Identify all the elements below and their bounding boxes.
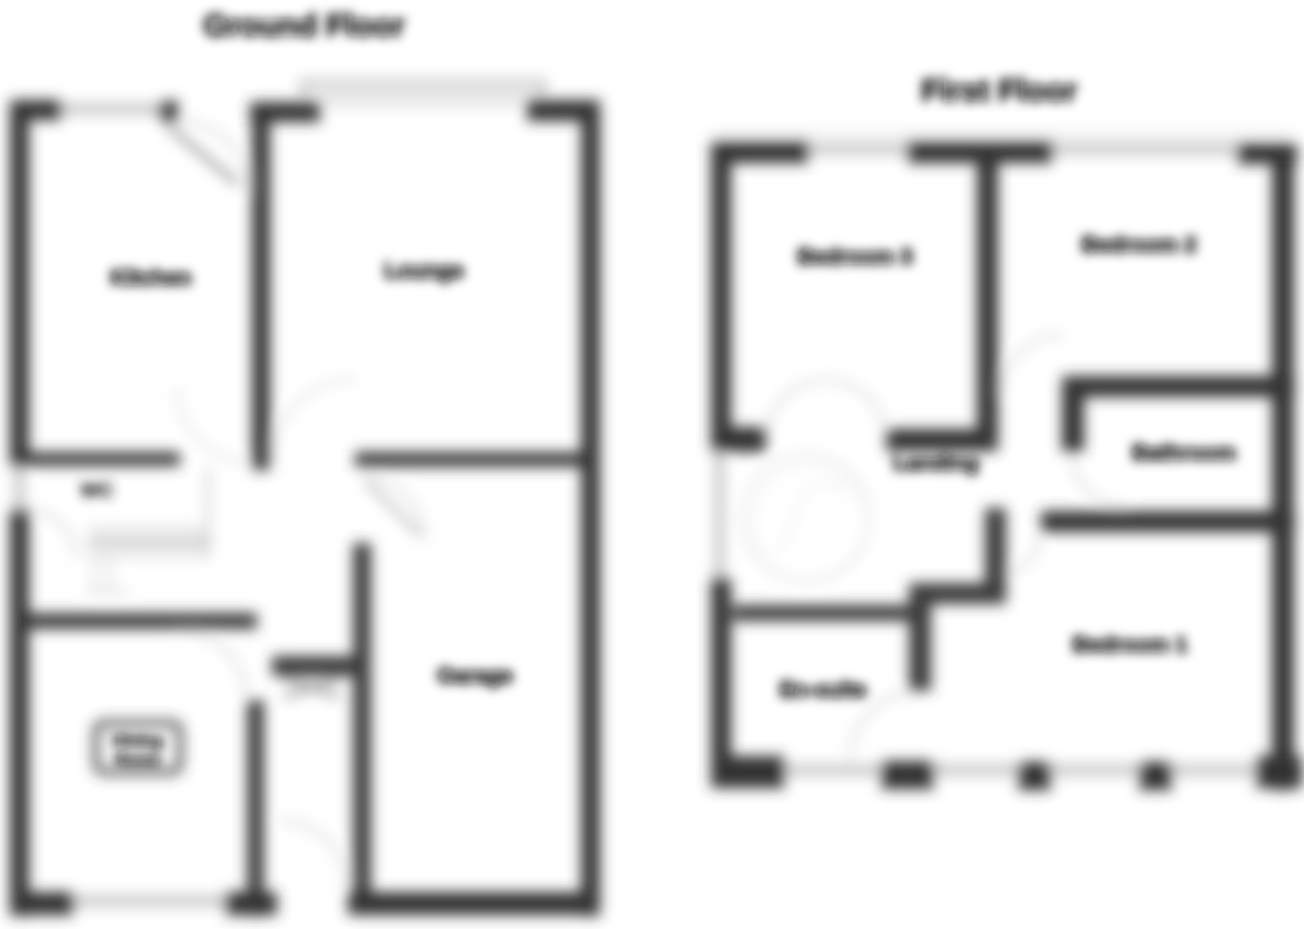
svg-text:En-suite: En-suite [780,677,867,702]
svg-text:Bedroom 3: Bedroom 3 [798,244,913,269]
svg-text:Garage: Garage [437,663,513,688]
svg-text:Bedroom 2: Bedroom 2 [1082,232,1197,257]
svg-text:Lounge: Lounge [384,258,463,283]
svg-text:Landing: Landing [893,450,979,475]
svg-text:Kitchen: Kitchen [111,265,192,290]
svg-text:Bedroom 1: Bedroom 1 [1073,632,1188,657]
svg-text:Dining: Dining [113,733,163,750]
svg-text:First Floor: First Floor [921,72,1077,108]
svg-text:Room: Room [115,752,160,769]
svg-text:Ground Floor: Ground Floor [203,7,404,43]
svg-text:WC: WC [80,480,113,502]
svg-text:Bathroom: Bathroom [1132,440,1236,465]
